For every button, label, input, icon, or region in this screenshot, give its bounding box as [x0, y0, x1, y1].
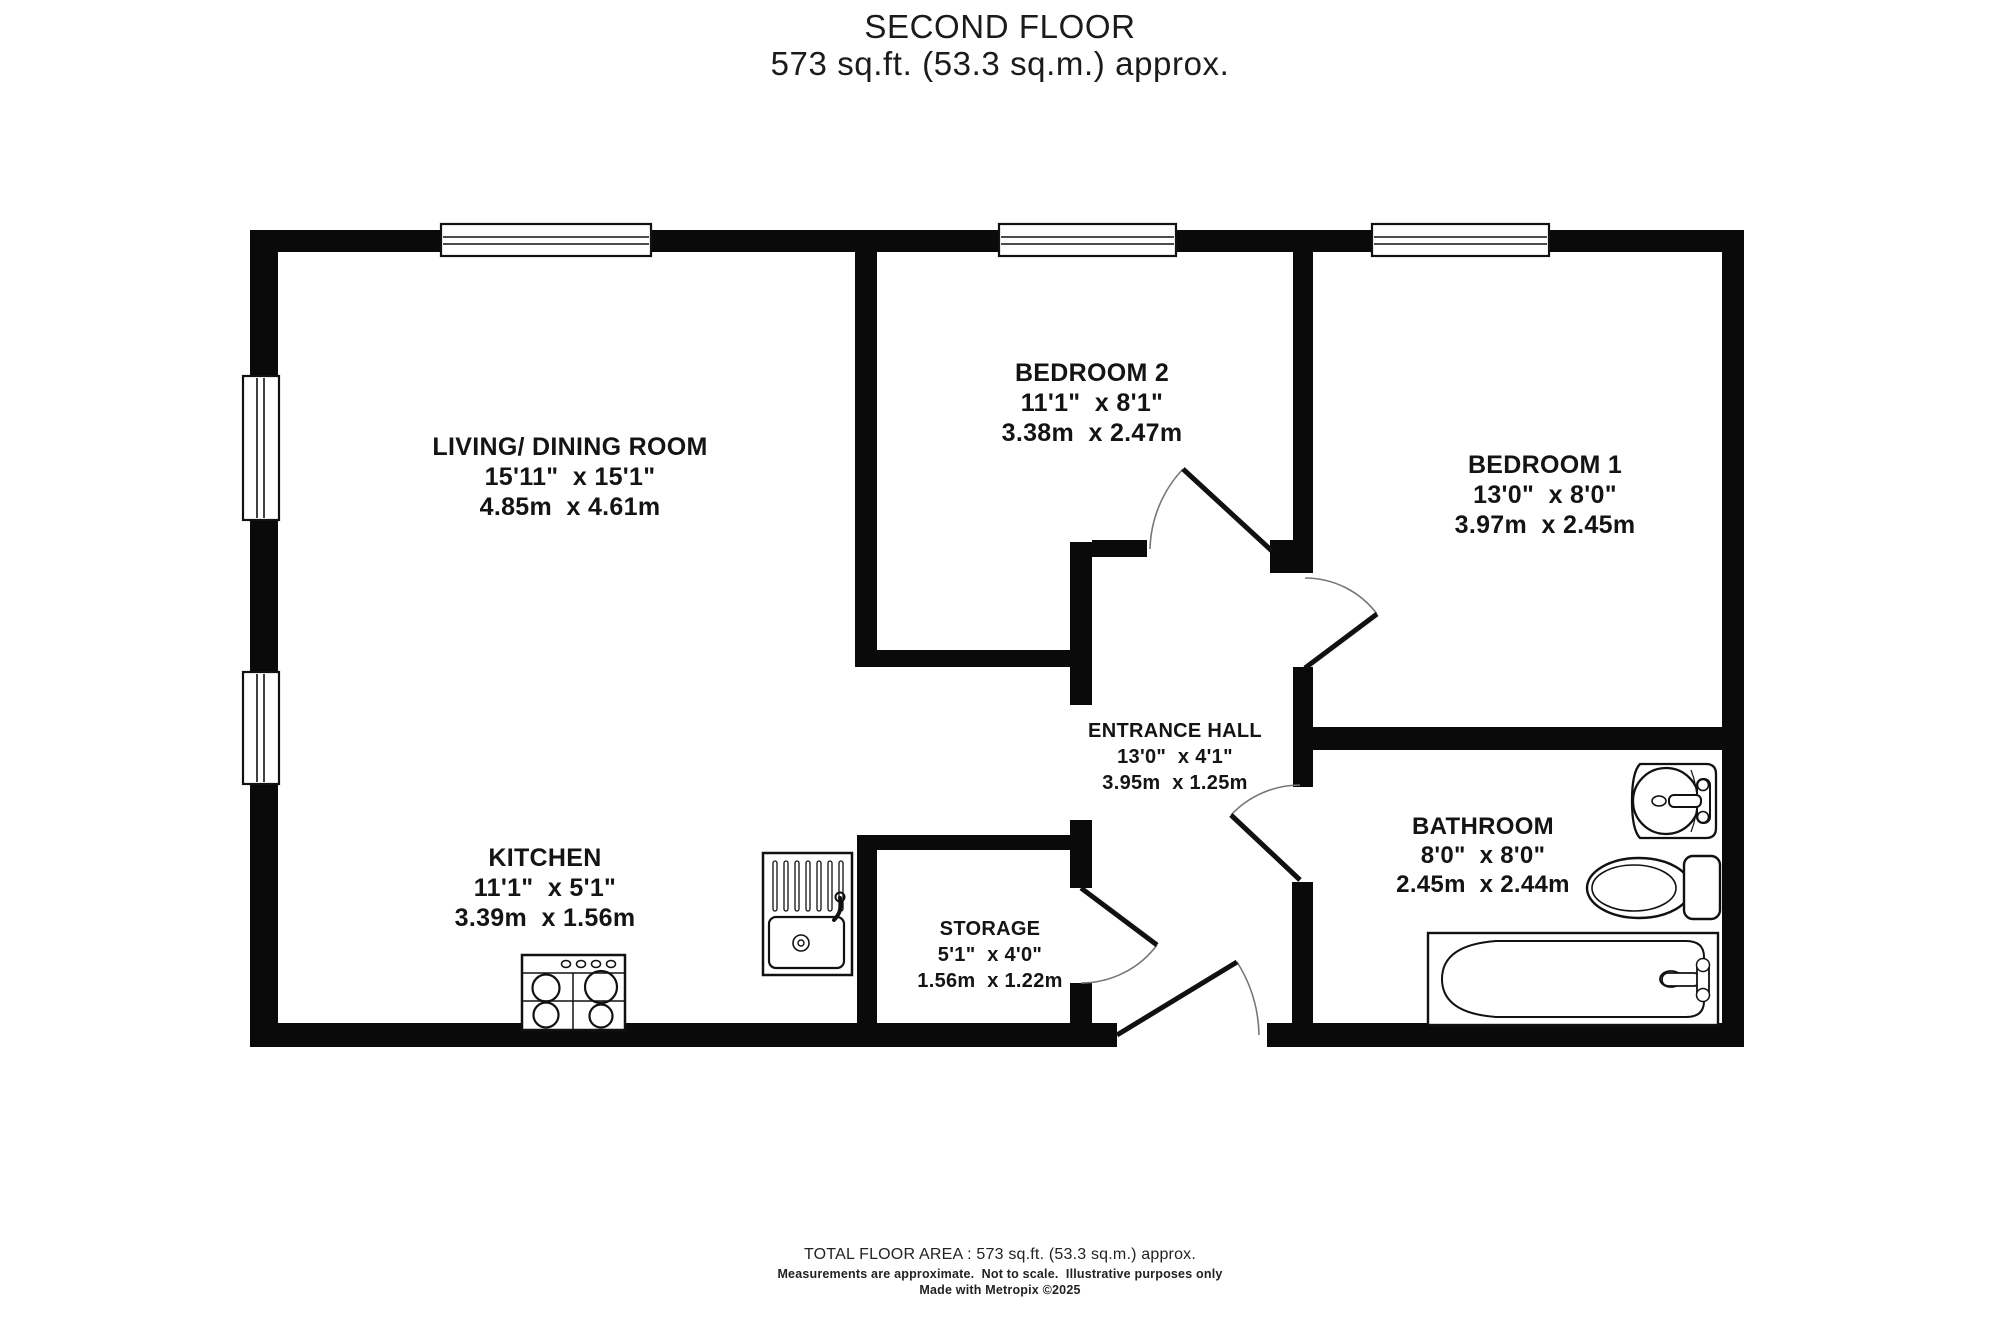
window-living-left-lower — [243, 672, 279, 784]
room-dims-imperial: 13'0" x 4'1" — [1088, 744, 1262, 770]
floorplan-page: SECOND FLOOR 573 sq.ft. (53.3 sq.m.) app… — [0, 0, 2000, 1333]
door-storage — [1081, 888, 1157, 983]
room-label-bathroom: BATHROOM 8'0" x 8'0" 2.45m x 2.44m — [1396, 812, 1570, 899]
floorplan-footer: TOTAL FLOOR AREA : 573 sq.ft. (53.3 sq.m… — [0, 1243, 2000, 1298]
room-dims-metric: 1.56m x 1.22m — [917, 968, 1062, 994]
room-name: BEDROOM 2 — [1002, 358, 1183, 388]
room-dims-metric: 2.45m x 2.44m — [1396, 870, 1570, 899]
wall-left-2 — [250, 520, 278, 672]
room-dims-imperial: 5'1" x 4'0" — [917, 942, 1062, 968]
room-dims-imperial: 8'0" x 8'0" — [1396, 841, 1570, 870]
room-name: STORAGE — [917, 916, 1062, 942]
room-dims-imperial: 15'11" x 15'1" — [432, 462, 707, 492]
wall-bedroom1-bathroom — [1313, 727, 1722, 750]
disclaimer: Measurements are approximate. Not to sca… — [0, 1266, 2000, 1282]
door-bedroom1 — [1305, 578, 1377, 668]
total-floor-area: TOTAL FLOOR AREA : 573 sq.ft. (53.3 sq.m… — [0, 1243, 2000, 1266]
room-name: KITCHEN — [455, 843, 636, 873]
room-dims-metric: 3.38m x 2.47m — [1002, 418, 1183, 448]
wall-bedroom2-bedroom1 — [1293, 252, 1313, 573]
window-bedroom2-top — [999, 224, 1176, 256]
window-living-top — [441, 224, 651, 256]
wall-top-4 — [1549, 230, 1744, 252]
wall-hall-kitchen — [855, 650, 1092, 667]
basin-icon — [1632, 764, 1716, 838]
floorplan-drawing — [0, 0, 2000, 1333]
interior-walls — [855, 252, 1722, 1023]
kitchen-sink-icon — [763, 853, 852, 975]
wall-storage-east-lower — [1070, 983, 1092, 1023]
stove-icon — [522, 955, 625, 1030]
wall-left-3 — [250, 784, 278, 1047]
room-label-kitchen: KITCHEN 11'1" x 5'1" 3.39m x 1.56m — [455, 843, 636, 933]
room-name: BATHROOM — [1396, 812, 1570, 841]
door-entrance — [1117, 962, 1259, 1035]
wall-bedroom2-door-jamb — [1270, 540, 1293, 573]
wall-bedroom2-bottom — [1092, 540, 1147, 557]
room-dims-imperial: 11'1" x 8'1" — [1002, 388, 1183, 418]
wall-living-bedroom2 — [855, 252, 877, 667]
wall-left-1 — [250, 230, 278, 376]
wall-bottom-2 — [1267, 1023, 1744, 1047]
room-dims-imperial: 11'1" x 5'1" — [455, 873, 636, 903]
room-name: LIVING/ DINING ROOM — [432, 432, 707, 462]
wall-top-1 — [250, 230, 441, 252]
wall-bottom-1 — [250, 1023, 1117, 1047]
window-living-left-upper — [243, 376, 279, 520]
room-dims-metric: 3.97m x 2.45m — [1455, 510, 1636, 540]
wall-right — [1722, 230, 1744, 1047]
door-bathroom — [1231, 785, 1300, 880]
room-dims-metric: 4.85m x 4.61m — [432, 492, 707, 522]
bath-icon — [1428, 933, 1718, 1025]
room-dims-metric: 3.39m x 1.56m — [455, 903, 636, 933]
door-bedroom2 — [1150, 469, 1272, 551]
room-name: BEDROOM 1 — [1455, 450, 1636, 480]
room-label-entrance-hall: ENTRANCE HALL 13'0" x 4'1" 3.95m x 1.25m — [1088, 718, 1262, 796]
room-dims-imperial: 13'0" x 8'0" — [1455, 480, 1636, 510]
wall-hall-bathroom — [1292, 882, 1313, 1023]
room-label-living: LIVING/ DINING ROOM 15'11" x 15'1" 4.85m… — [432, 432, 707, 522]
wall-top-3 — [1176, 230, 1372, 252]
wall-storage-left — [857, 835, 877, 1023]
room-name: ENTRANCE HALL — [1088, 718, 1262, 744]
room-label-bedroom2: BEDROOM 2 11'1" x 8'1" 3.38m x 2.47m — [1002, 358, 1183, 448]
toilet-icon — [1587, 856, 1720, 919]
room-dims-metric: 3.95m x 1.25m — [1088, 770, 1262, 796]
room-label-storage: STORAGE 5'1" x 4'0" 1.56m x 1.22m — [917, 916, 1062, 994]
wall-hall-bedroom1-jamb — [1293, 667, 1313, 787]
wall-storage-east-upper — [1070, 820, 1092, 888]
credit: Made with Metropix ©2025 — [0, 1282, 2000, 1298]
wall-storage-top — [857, 835, 1092, 850]
window-bedroom1-top — [1372, 224, 1549, 256]
room-label-bedroom1: BEDROOM 1 13'0" x 8'0" 3.97m x 2.45m — [1455, 450, 1636, 540]
wall-hall-west-upper — [1070, 542, 1092, 705]
wall-top-2 — [651, 230, 999, 252]
